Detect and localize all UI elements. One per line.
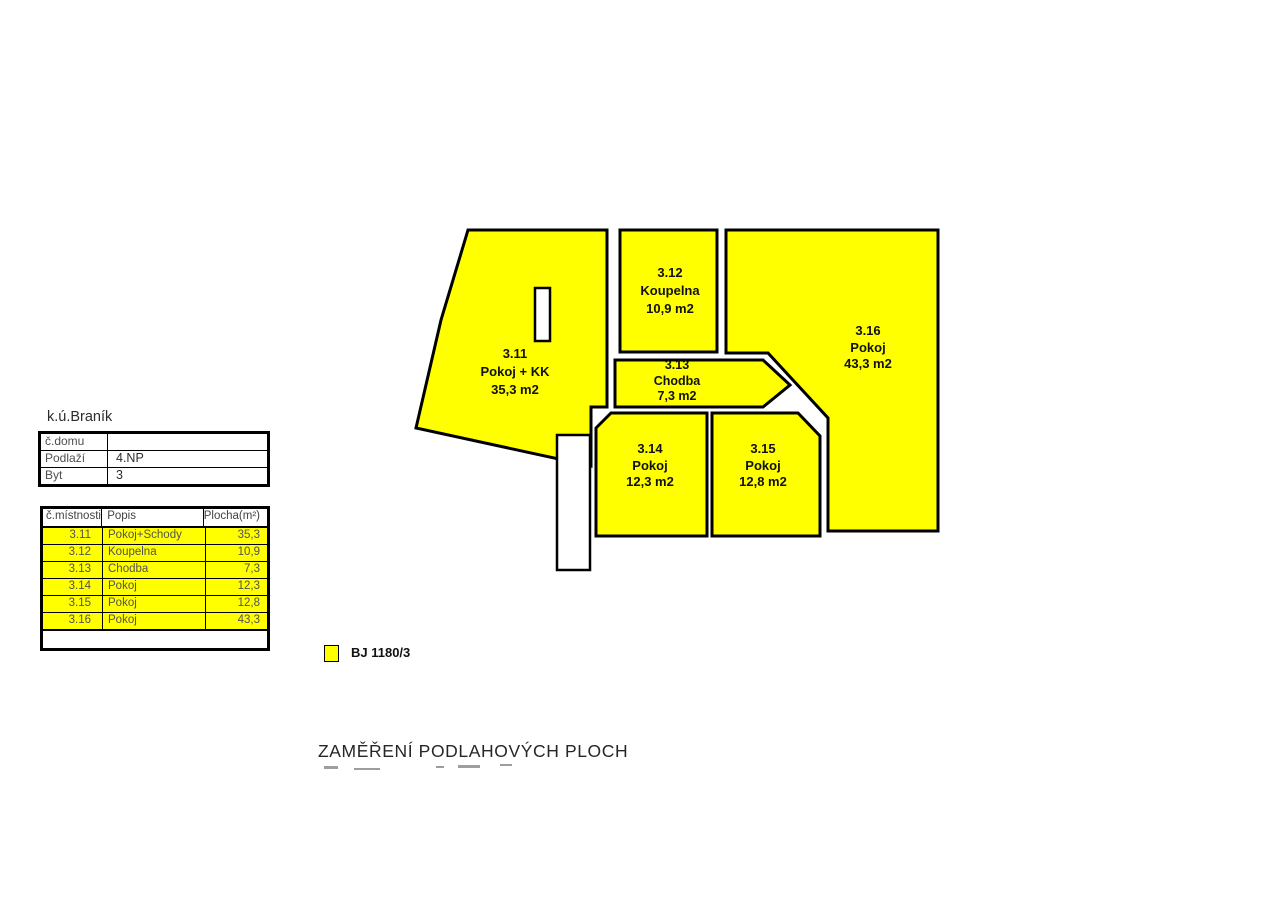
room-name: Koupelna [640, 282, 699, 300]
room-area: 7,3 m2 [654, 389, 701, 405]
cropped-text-mark [458, 765, 480, 768]
cell-plocha: 12,3 [206, 579, 267, 595]
room-3-11-label: 3.11 Pokoj + KK 35,3 m2 [481, 345, 550, 399]
header-plocha: Plocha(m²) [204, 509, 267, 526]
cell-room-no: 3.13 [43, 562, 103, 578]
stair-shaft-shape [557, 435, 590, 570]
room-3-13-label: 3.13 Chodba 7,3 m2 [654, 358, 701, 405]
room-name: Chodba [654, 374, 701, 390]
table-row: 3.11 Pokoj+Schody 35,3 [43, 528, 267, 545]
cell-popis: Koupelna [103, 545, 206, 561]
room-name: Pokoj [844, 340, 892, 357]
table-row: Byt 3 [41, 468, 267, 484]
cell-room-no: 3.11 [43, 528, 103, 544]
cell-popis: Pokoj+Schody [103, 528, 206, 544]
room-number: 3.11 [481, 345, 550, 363]
cropped-text-mark [354, 768, 380, 770]
cell-plocha: 35,3 [206, 528, 267, 544]
row-value [108, 434, 267, 450]
room-area: 10,9 m2 [640, 300, 699, 318]
header-room-no: č.místnosti [43, 509, 102, 526]
room-name: Pokoj + KK [481, 363, 550, 381]
row-label: č.domu [41, 434, 108, 450]
table-row: Podlaží 4.NP [41, 451, 267, 468]
cell-room-no: 3.14 [43, 579, 103, 595]
room-number: 3.15 [739, 441, 787, 458]
room-area: 12,3 m2 [626, 474, 674, 491]
table-row: 3.12 Koupelna 10,9 [43, 545, 267, 562]
cell-room-no: 3.16 [43, 613, 103, 629]
room-number: 3.12 [640, 264, 699, 282]
floor-plan-page: 3.11 Pokoj + KK 35,3 m2 3.12 Koupelna 10… [0, 0, 1280, 901]
cadastral-area-label: k.ú.Braník [47, 409, 112, 425]
cropped-text-mark [500, 764, 512, 766]
legend-unit-label: BJ 1180/3 [351, 645, 410, 660]
room-area: 12,8 m2 [739, 474, 787, 491]
room-number: 3.16 [844, 323, 892, 340]
room-3-12-label: 3.12 Koupelna 10,9 m2 [640, 264, 699, 318]
room-area: 43,3 m2 [844, 356, 892, 373]
table-row: 3.14 Pokoj 12,3 [43, 579, 267, 596]
cell-plocha: 12,8 [206, 596, 267, 612]
room-3-15-label: 3.15 Pokoj 12,8 m2 [739, 441, 787, 491]
room-number: 3.13 [654, 358, 701, 374]
cell-popis: Chodba [103, 562, 206, 578]
row-value: 3 [108, 468, 267, 484]
row-value: 4.NP [108, 451, 267, 467]
cropped-text-mark [324, 766, 338, 769]
table-row: 3.15 Pokoj 12,8 [43, 596, 267, 613]
room-name: Pokoj [739, 458, 787, 475]
cell-plocha: 7,3 [206, 562, 267, 578]
room-3-16-label: 3.16 Pokoj 43,3 m2 [844, 323, 892, 373]
cell-plocha: 10,9 [206, 545, 267, 561]
drawing-title: ZAMĚŘENÍ PODLAHOVÝCH PLOCH [318, 741, 628, 762]
header-popis: Popis [102, 509, 204, 526]
table-row: č.domu [41, 434, 267, 451]
room-area: 35,3 m2 [481, 381, 550, 399]
cell-room-no: 3.15 [43, 596, 103, 612]
table-header-row: č.místnosti Popis Plocha(m²) [43, 509, 267, 528]
cropped-text-mark [436, 766, 444, 768]
cell-popis: Pokoj [103, 579, 206, 595]
row-label: Byt [41, 468, 108, 484]
room-number: 3.14 [626, 441, 674, 458]
table-row: 3.16 Pokoj 43,3 [43, 613, 267, 630]
column-shape [535, 288, 550, 341]
cell-popis: Pokoj [103, 596, 206, 612]
cell-room-no: 3.12 [43, 545, 103, 561]
table-row: 3.13 Chodba 7,3 [43, 562, 267, 579]
legend-color-swatch [324, 645, 339, 662]
row-label: Podlaží [41, 451, 108, 467]
room-area-table: č.místnosti Popis Plocha(m²) 3.11 Pokoj+… [40, 506, 270, 651]
cell-popis: Pokoj [103, 613, 206, 629]
room-3-14-label: 3.14 Pokoj 12,3 m2 [626, 441, 674, 491]
cell-plocha: 43,3 [206, 613, 267, 629]
building-info-table: č.domu Podlaží 4.NP Byt 3 [38, 431, 270, 487]
table-empty-row [43, 630, 267, 648]
room-name: Pokoj [626, 458, 674, 475]
room-3-13-shape [615, 360, 790, 407]
